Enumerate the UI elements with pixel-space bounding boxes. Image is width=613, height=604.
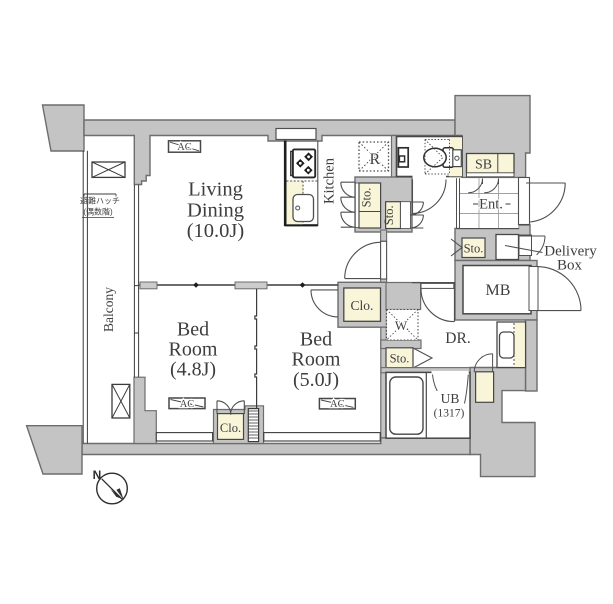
svg-text:Balcony: Balcony (101, 287, 116, 332)
svg-text:UB: UB (441, 391, 460, 406)
svg-text:避難ハッチ: 避難ハッチ (80, 196, 120, 206)
svg-text:Sto.: Sto. (464, 242, 484, 256)
svg-text:Living: Living (188, 179, 243, 201)
svg-text:(1317): (1317) (434, 408, 465, 420)
svg-text:MB: MB (486, 282, 511, 299)
svg-text:Room: Room (292, 349, 341, 371)
svg-text:AC: AC (177, 142, 192, 153)
svg-text:(10.0J): (10.0J) (187, 220, 245, 242)
svg-text:Box: Box (557, 258, 583, 274)
svg-text:Dining: Dining (187, 200, 244, 222)
svg-text:(偶数階): (偶数階) (83, 207, 113, 217)
svg-text:R: R (369, 151, 380, 168)
svg-text:Kitchen: Kitchen (322, 157, 338, 204)
svg-text:Sto.: Sto. (359, 188, 373, 208)
svg-text:Bed: Bed (177, 319, 209, 341)
svg-text:SB: SB (475, 157, 492, 172)
svg-text:Clo.: Clo. (220, 421, 241, 435)
svg-text:AC: AC (180, 399, 195, 410)
svg-text:(4.8J): (4.8J) (170, 359, 216, 381)
svg-text:AC: AC (330, 399, 345, 410)
svg-text:Sto.: Sto. (382, 205, 396, 225)
svg-text:Sto.: Sto. (390, 352, 410, 366)
svg-text:DR.: DR. (445, 330, 470, 347)
svg-text:Bed: Bed (300, 329, 332, 351)
svg-text:Room: Room (169, 339, 218, 361)
svg-text:Ent.: Ent. (479, 197, 503, 213)
svg-text:(5.0J): (5.0J) (293, 369, 339, 391)
svg-text:W.: W. (395, 318, 409, 333)
svg-text:Clo.: Clo. (351, 298, 374, 313)
svg-text:N: N (93, 468, 102, 482)
